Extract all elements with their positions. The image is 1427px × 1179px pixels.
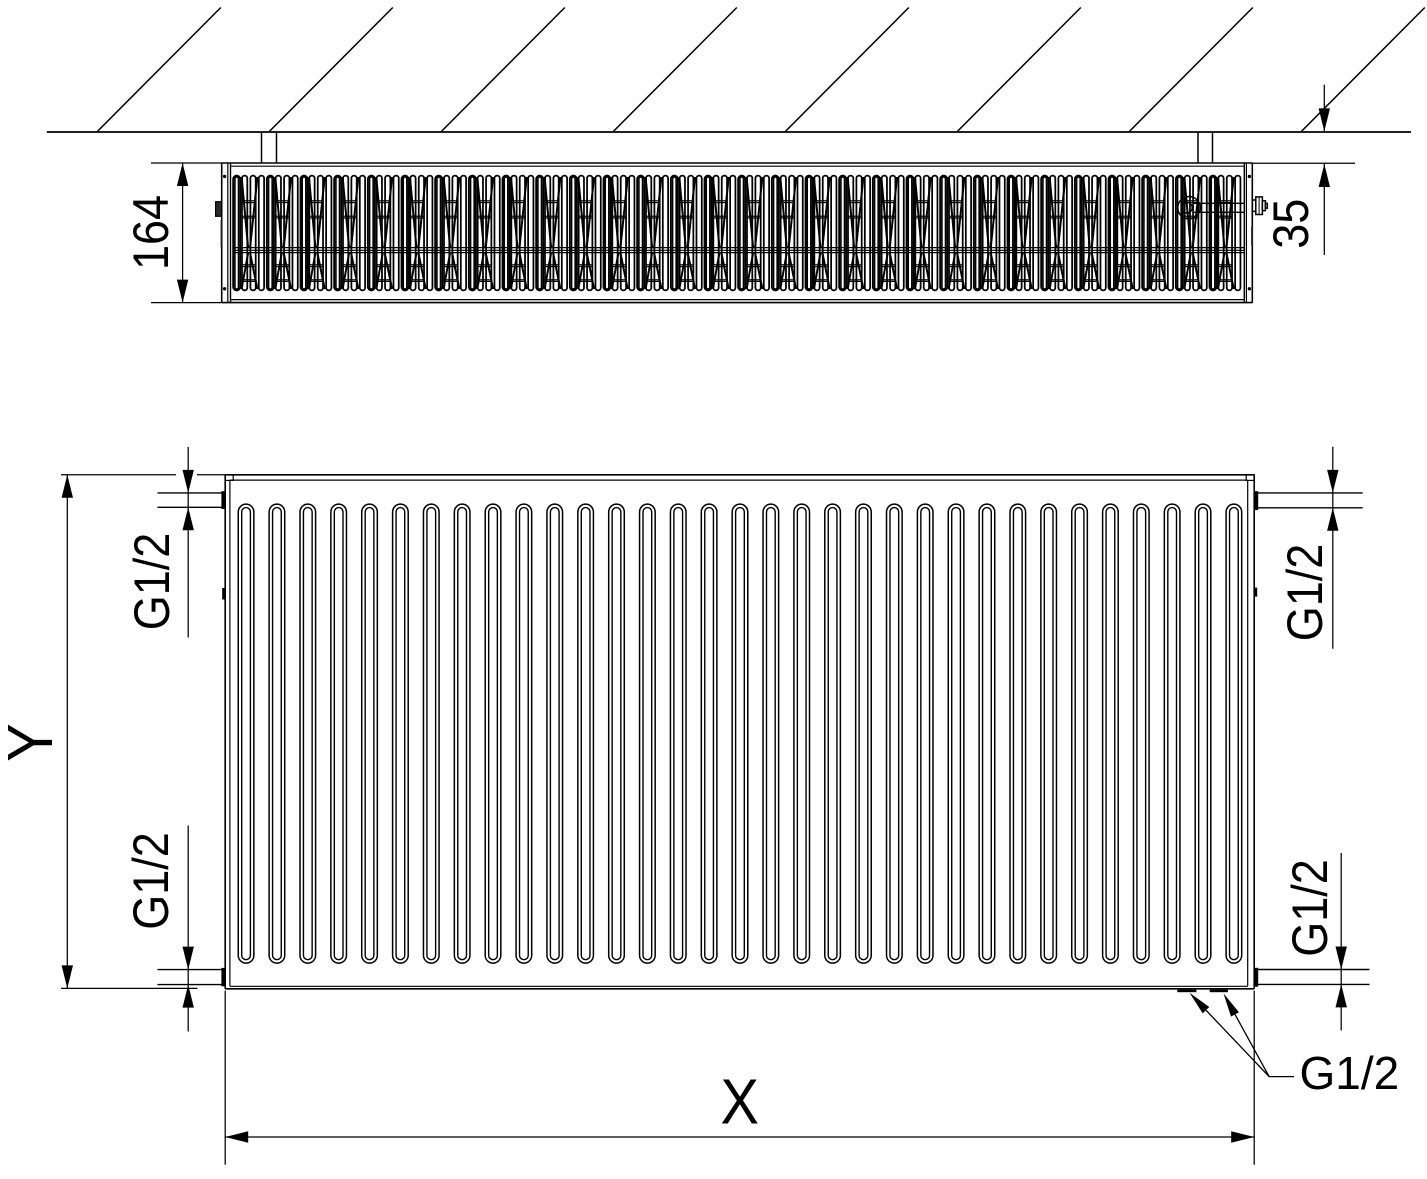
svg-text:G1/2: G1/2 bbox=[1300, 1047, 1400, 1099]
svg-text:G1/2: G1/2 bbox=[1278, 544, 1334, 642]
svg-text:G1/2: G1/2 bbox=[1283, 859, 1339, 957]
svg-text:X: X bbox=[720, 1066, 758, 1137]
svg-text:G1/2: G1/2 bbox=[125, 533, 181, 631]
svg-text:G1/2: G1/2 bbox=[124, 832, 180, 930]
svg-text:Y: Y bbox=[0, 723, 66, 761]
svg-text:35: 35 bbox=[1264, 199, 1320, 249]
svg-text:164: 164 bbox=[124, 195, 180, 270]
